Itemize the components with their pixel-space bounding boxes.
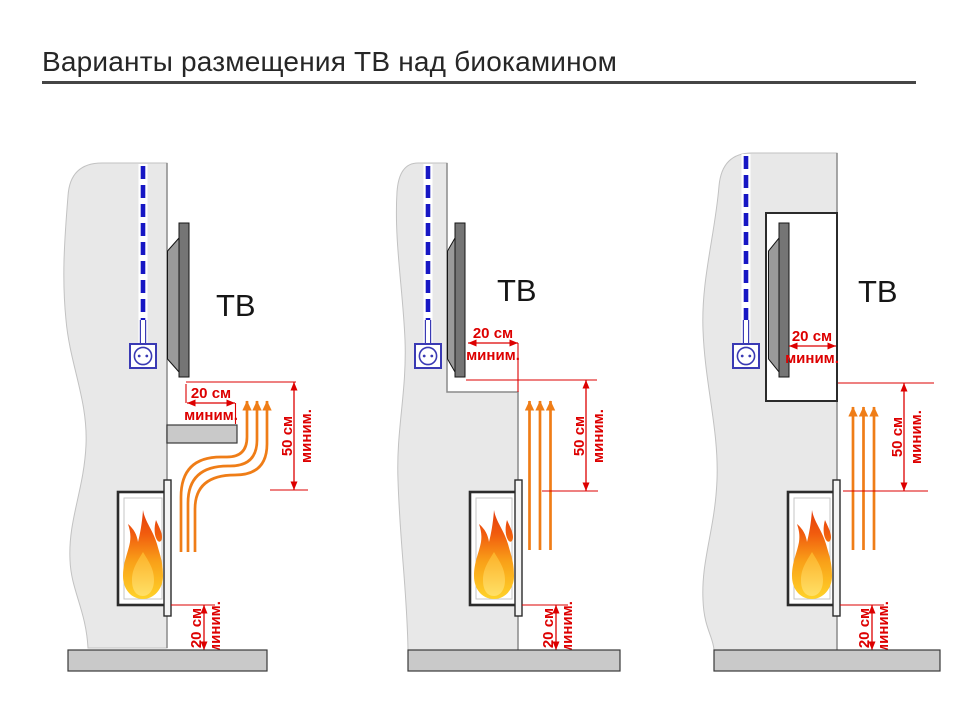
tv-side-view (168, 223, 190, 377)
diagram-tv-recessed-step: ТВ 20 см миним. 50 см миним. 20 см миним… (396, 163, 620, 671)
fireplace (788, 480, 840, 616)
svg-text:20 см: 20 см (191, 385, 231, 402)
dimension-20cm-front: 20 см миним. (466, 325, 520, 392)
svg-text:миним.: миним. (207, 601, 224, 655)
svg-text:миним.: миним. (875, 601, 892, 655)
diagram-tv-above-shelf: ТВ 20 см миним. 50 см миним. 20 см миним… (64, 163, 315, 671)
floor-slab (714, 650, 940, 671)
tv-side-view (448, 223, 466, 377)
dimension-20cm-floor: 20 см миним. (522, 601, 576, 655)
svg-text:50 см: 50 см (571, 416, 588, 456)
heat-flow-arrows (530, 401, 551, 550)
dimension-20cm-floor: 20 см миним. (171, 601, 224, 655)
svg-text:миним.: миним. (785, 350, 839, 367)
tv-label: ТВ (497, 273, 537, 308)
dimension-20cm-front: 20 см миним. (184, 384, 238, 424)
power-cable-dashed-line (743, 154, 748, 344)
tv-label: ТВ (216, 288, 256, 323)
fireplace (470, 480, 522, 616)
svg-text:20 см: 20 см (473, 325, 513, 342)
svg-text:20 см: 20 см (540, 608, 557, 648)
diagram-canvas: ТВ 20 см миним. 50 см миним. 20 см миним… (0, 0, 970, 728)
dimension-20cm-floor: 20 см миним. (840, 601, 892, 655)
fireplace-glass (515, 480, 522, 616)
diagram-tv-in-niche: ТВ 20 см миним. 50 см миним. 20 см миним… (703, 153, 940, 671)
fireplace (118, 480, 171, 616)
svg-text:миним.: миним. (184, 407, 238, 424)
svg-text:миним.: миним. (908, 410, 925, 464)
svg-text:миним.: миним. (298, 409, 315, 463)
svg-text:20 см: 20 см (856, 608, 873, 648)
svg-text:миним.: миним. (466, 347, 520, 364)
floor-slab (68, 650, 267, 671)
power-outlet-icon (130, 344, 156, 368)
fireplace-glass (164, 480, 171, 616)
svg-text:миним.: миним. (559, 601, 576, 655)
tv-label: ТВ (858, 274, 898, 309)
power-outlet-icon (415, 344, 441, 368)
fireplace-glass (833, 480, 840, 616)
svg-text:20 см: 20 см (792, 328, 832, 345)
svg-text:50 см: 50 см (889, 417, 906, 457)
power-outlet-icon (733, 344, 759, 368)
svg-text:20 см: 20 см (188, 608, 205, 648)
floor-slab (408, 650, 620, 671)
power-cable-dashed-line (140, 164, 145, 344)
protective-shelf (167, 425, 237, 443)
heat-flow-arrows (853, 407, 874, 550)
svg-text:50 см: 50 см (279, 416, 296, 456)
power-cable-dashed-line (425, 164, 430, 344)
svg-text:миним.: миним. (590, 409, 607, 463)
